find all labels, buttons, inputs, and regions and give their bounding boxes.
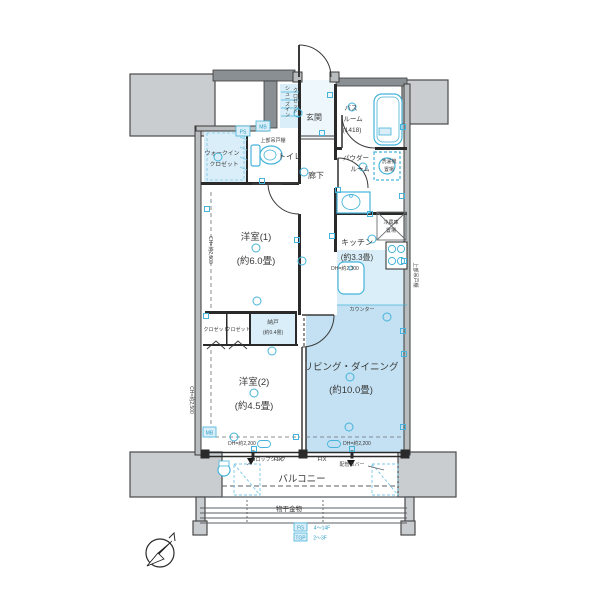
fixture-symbol-square	[205, 207, 210, 212]
wall-bath-west	[334, 84, 337, 160]
bedroom1-door	[268, 183, 299, 214]
fixture-symbol-circle	[300, 168, 308, 176]
window-tag-pill	[258, 441, 271, 448]
entrance-floor-fill	[300, 80, 335, 138]
wic-label-1: ウォークイン	[205, 149, 240, 157]
upper-cabinet-toilet-label: 上部吊戸棚	[260, 137, 285, 144]
wall-left	[195, 126, 201, 455]
partition-bedroom2-living	[302, 318, 306, 452]
window-jamb	[201, 450, 209, 458]
toilet-label: トイレ	[278, 152, 302, 161]
ac-unit-space-right	[372, 464, 398, 495]
washer-label-2: 置場	[384, 166, 394, 173]
washing-machine-space	[374, 152, 400, 180]
sic-label-2: クロゼット	[293, 88, 298, 115]
wic-label-2: クロゼット	[210, 160, 239, 168]
balcony	[200, 458, 413, 523]
slop-sink-label: スロップシンク	[250, 457, 285, 463]
bedroom2-label: 洋室(2)	[239, 376, 270, 388]
hallway-label: 廊下	[308, 170, 324, 180]
entrance-label: 玄関	[306, 112, 322, 122]
railing	[200, 500, 407, 523]
wall-hall-west-upper	[298, 80, 301, 184]
powder-label-1: パウダー	[343, 153, 369, 162]
bedroom1-size: (約6.0畳)	[237, 255, 276, 267]
ch-bedroom2-label: CH=約2,500	[188, 386, 195, 414]
ch-bedroom1-label: CH=約2,500	[207, 236, 214, 264]
dh-kitchen-label: DH=約2,300	[331, 265, 359, 272]
fixture-symbol-circle	[253, 297, 261, 305]
fridge-label-2: 置場	[386, 227, 396, 234]
fg-range: 4〜14F	[314, 526, 330, 532]
storage-size: (約0.4畳)	[263, 329, 284, 336]
vanity-sink	[337, 192, 370, 213]
ac-unit-space-left	[234, 464, 260, 495]
floorplan-page: 洋室(1) (約6.0畳) 洋室(2) (約4.5畳) リビング・ダイニング (…	[0, 0, 600, 603]
balcony-pier-left	[196, 497, 205, 523]
bathtub	[374, 94, 402, 145]
closet2-label: クロゼット	[225, 326, 250, 333]
bath-label-3: (1418)	[343, 127, 362, 134]
hatched-wall-bath-top	[336, 78, 407, 86]
wall-bath-powder	[375, 147, 407, 150]
bath-label-2: ルーム	[343, 115, 363, 123]
counter-label: カウンター	[349, 306, 374, 313]
gray-block-bottom-left	[130, 452, 222, 497]
bath-label-1: バス	[345, 104, 358, 112]
powder-door	[338, 158, 368, 188]
fix-label-2: FIX	[317, 457, 326, 463]
washer-label-1: 洗濯機	[381, 158, 396, 165]
slop-sink	[218, 461, 230, 476]
storage-label: 納戸	[267, 318, 279, 326]
kitchen-size: (約3.3畳)	[341, 252, 374, 262]
laundry-hardware-label: 物干金物	[276, 504, 303, 513]
fixture-symbol-square	[204, 314, 209, 319]
fg-tag: FG	[297, 526, 304, 532]
ps-label: PS	[240, 130, 247, 136]
fixture-symbol-square	[330, 234, 335, 239]
mb-bottom-label: MB	[206, 431, 214, 437]
bedroom2-size: (約4.5畳)	[235, 400, 274, 412]
fixture-symbol-circle	[268, 347, 276, 355]
floorplan-drawing: 洋室(1) (約6.0畳) 洋室(2) (約4.5畳) リビング・ダイニング (…	[0, 0, 600, 603]
wall-storage-east	[295, 311, 297, 345]
compass-icon	[146, 533, 175, 567]
living-label: リビング・ダイニング	[303, 361, 399, 373]
balcony-label: バルコニー	[278, 474, 325, 485]
upper-cabinet-kitchen-label: 上部吊戸棚	[412, 262, 419, 287]
refrigerator-space	[377, 212, 406, 240]
dh-left-label: DH=約2,200	[228, 440, 256, 447]
balcony-pier-right	[405, 497, 414, 523]
stove	[386, 242, 407, 269]
sic-label-1: シューズイン	[285, 86, 290, 118]
tgp-range: 2〜3F	[313, 536, 327, 542]
window-jamb	[401, 450, 409, 458]
fridge-label-1: 冷蔵庫	[383, 219, 398, 226]
pipe-cover-label: 配管カバー	[339, 461, 364, 468]
fixture-symbol-circle	[250, 389, 258, 397]
fixture-symbol-circle	[252, 244, 260, 252]
mb-top-label: MB	[259, 125, 267, 131]
gray-block-bottom-right	[398, 452, 456, 497]
entrance-door	[299, 45, 331, 77]
living-size: (約10.0畳)	[329, 384, 373, 396]
hatched-wall-top	[213, 70, 295, 81]
storage-fill	[251, 313, 295, 344]
powder-label-2: ルーム	[350, 165, 370, 173]
dh-right-label: DH=約2,200	[343, 440, 371, 447]
kitchen-label: キッチン	[341, 238, 373, 247]
bedroom1-label: 洋室(1)	[241, 231, 272, 243]
living-dining-fill	[306, 315, 407, 452]
tgp-tag: TGP	[295, 536, 306, 542]
